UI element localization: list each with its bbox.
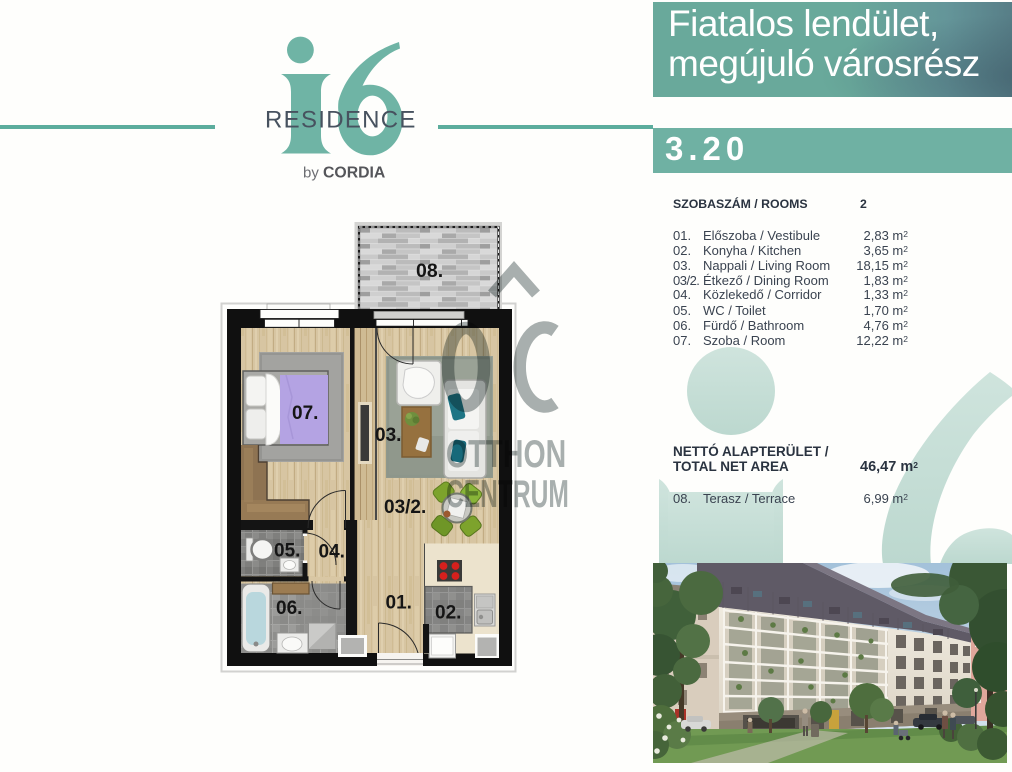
svg-text:03.: 03. — [375, 425, 401, 446]
svg-text:04.: 04. — [319, 542, 345, 563]
svg-text:03/2.: 03/2. — [384, 497, 426, 518]
svg-text:01.: 01. — [386, 593, 412, 614]
svg-text:05.: 05. — [274, 541, 300, 562]
svg-text:OTTHON: OTTHON — [446, 433, 566, 476]
svg-text:RESIDENCE: RESIDENCE — [265, 107, 417, 134]
svg-text:06.: 06. — [276, 598, 302, 619]
svg-text:07.: 07. — [292, 403, 318, 424]
svg-text:by CORDIA: by CORDIA — [303, 165, 385, 182]
svg-text:02.: 02. — [435, 603, 461, 624]
svg-text:CENTRUM: CENTRUM — [446, 471, 569, 515]
